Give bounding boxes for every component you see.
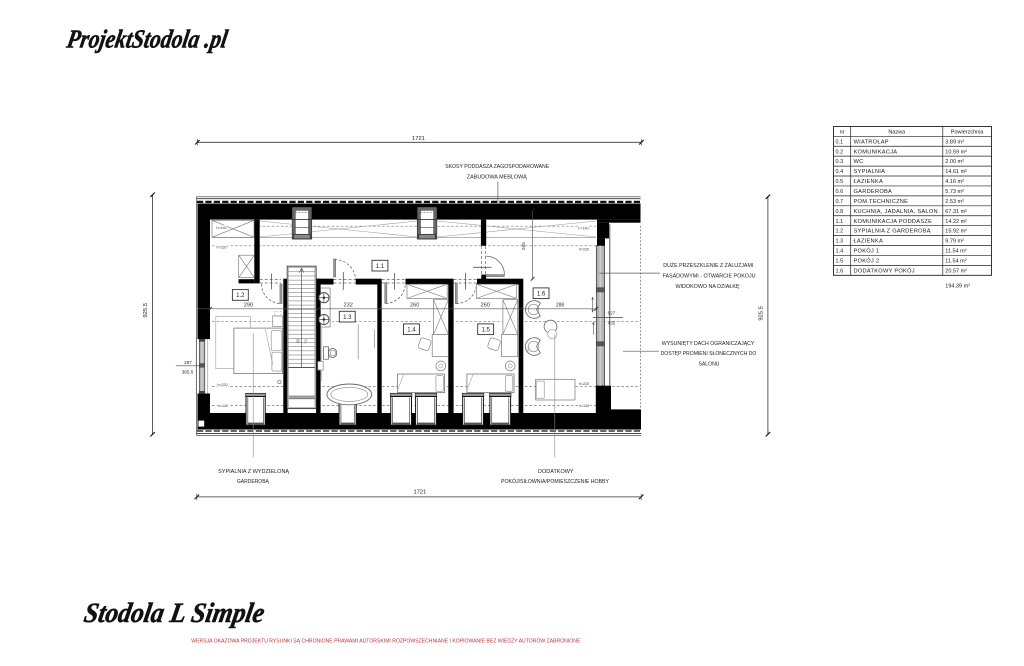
svg-text:90: 90 bbox=[295, 338, 300, 343]
svg-text:1721: 1721 bbox=[412, 136, 425, 142]
svg-text:1.2: 1.2 bbox=[836, 229, 844, 235]
svg-text:0.8: 0.8 bbox=[836, 209, 844, 215]
svg-text:0.7: 0.7 bbox=[836, 199, 844, 205]
svg-text:14.61 m²: 14.61 m² bbox=[945, 169, 967, 175]
svg-text:Stodola L Simple: Stodola L Simple bbox=[82, 598, 267, 629]
svg-text:ProjektStodola .pl: ProjektStodola .pl bbox=[64, 25, 230, 54]
svg-text:1.1: 1.1 bbox=[376, 264, 385, 270]
svg-text:20.57 m²: 20.57 m² bbox=[945, 268, 967, 274]
svg-text:SYPIALNIA: SYPIALNIA bbox=[854, 169, 886, 175]
svg-text:SYPIALNIA Z WYDZIELONĄ: SYPIALNIA Z WYDZIELONĄ bbox=[218, 469, 289, 475]
svg-text:SYPIALNIA Z GARDEROBĄ: SYPIALNIA Z GARDEROBĄ bbox=[854, 229, 931, 235]
svg-text:1.4: 1.4 bbox=[836, 249, 844, 255]
svg-text:SKOSY PODDASZA ZAGOSPODAROWANE: SKOSY PODDASZA ZAGOSPODAROWANE bbox=[445, 164, 549, 170]
svg-text:0.6: 0.6 bbox=[836, 189, 844, 195]
svg-text:265: 265 bbox=[521, 242, 527, 250]
svg-text:2.53 m²: 2.53 m² bbox=[945, 199, 964, 205]
svg-text:SALONU: SALONU bbox=[699, 362, 720, 368]
svg-text:h=220: h=220 bbox=[217, 383, 227, 387]
svg-text:9.79 m²: 9.79 m² bbox=[945, 239, 964, 245]
svg-text:h=220: h=220 bbox=[579, 382, 589, 386]
svg-text:ZABUDOWA MEBLOWĄ: ZABUDOWA MEBLOWĄ bbox=[467, 175, 527, 181]
svg-text:290: 290 bbox=[244, 303, 253, 309]
svg-text:1.3: 1.3 bbox=[836, 239, 844, 245]
svg-text:925.5: 925.5 bbox=[143, 303, 149, 318]
svg-text:Powierzchnia: Powierzchnia bbox=[951, 130, 985, 136]
svg-text:0.1: 0.1 bbox=[836, 139, 844, 145]
svg-text:267: 267 bbox=[184, 360, 192, 365]
svg-text:DOSTĘP PROMIENI SŁONECZNYCH DO: DOSTĘP PROMIENI SŁONECZNYCH DO bbox=[661, 351, 757, 357]
svg-text:260: 260 bbox=[481, 303, 490, 309]
svg-text:925.5: 925.5 bbox=[759, 306, 765, 321]
svg-text:POKÓJ/SIŁOWNIA/POMIESZCZENIE H: POKÓJ/SIŁOWNIA/POMIESZCZENIE HOBBY bbox=[501, 478, 609, 485]
svg-text:14.22 m²: 14.22 m² bbox=[945, 219, 967, 225]
svg-text:11.54 m²: 11.54 m² bbox=[945, 249, 966, 255]
svg-text:1.3: 1.3 bbox=[343, 315, 352, 321]
svg-text:DUŻE PRZESZKLENIE Z ŻALUZJAMI: DUŻE PRZESZKLENIE Z ŻALUZJAMI bbox=[663, 262, 753, 269]
svg-text:5.73 m²: 5.73 m² bbox=[945, 189, 964, 195]
svg-text:h=220: h=220 bbox=[216, 246, 226, 250]
svg-text:POKÓJ 1: POKÓJ 1 bbox=[854, 248, 880, 255]
svg-text:WYSUNIĘTY DACH OGRANICZAJĄCY: WYSUNIĘTY DACH OGRANICZAJĄCY bbox=[662, 341, 755, 347]
svg-text:WC: WC bbox=[854, 159, 864, 165]
svg-text:0.5: 0.5 bbox=[836, 179, 844, 185]
svg-text:232: 232 bbox=[344, 303, 353, 309]
svg-text:KUCHNIA, JADALNIA, SALON: KUCHNIA, JADALNIA, SALON bbox=[854, 209, 938, 215]
svg-text:WIDOKOWO NA DZIAŁKĘ: WIDOKOWO NA DZIAŁKĘ bbox=[676, 284, 740, 290]
svg-text:DODATKOWY: DODATKOWY bbox=[538, 469, 574, 475]
svg-text:260: 260 bbox=[410, 303, 419, 309]
svg-text:1.4: 1.4 bbox=[407, 328, 416, 334]
svg-text:GARDEROBA: GARDEROBA bbox=[854, 189, 893, 195]
svg-text:h=140: h=140 bbox=[216, 226, 226, 230]
svg-text:GARDEROBĄ: GARDEROBĄ bbox=[237, 479, 269, 485]
svg-text:KOMUNIKACJA: KOMUNIKACJA bbox=[854, 149, 898, 155]
svg-text:365.5: 365.5 bbox=[182, 369, 194, 374]
svg-text:3.89 m²: 3.89 m² bbox=[945, 139, 964, 145]
svg-text:1.6: 1.6 bbox=[836, 268, 844, 274]
svg-text:15.92 m²: 15.92 m² bbox=[945, 229, 967, 235]
svg-text:POKÓJ 2: POKÓJ 2 bbox=[854, 257, 880, 264]
svg-text:11.54 m²: 11.54 m² bbox=[945, 258, 966, 264]
svg-text:nr: nr bbox=[840, 130, 845, 136]
svg-text:1.5: 1.5 bbox=[481, 328, 490, 334]
svg-text:67.31 m²: 67.31 m² bbox=[945, 209, 967, 215]
svg-text:288: 288 bbox=[556, 302, 565, 308]
svg-text:1.5: 1.5 bbox=[836, 258, 844, 264]
svg-text:WERSJA OKAZOWA PROJEKTU RYSUNK: WERSJA OKAZOWA PROJEKTU RYSUNKI SĄ CHRON… bbox=[191, 637, 581, 644]
svg-text:2.00 m²: 2.00 m² bbox=[945, 159, 964, 165]
svg-text:1.2: 1.2 bbox=[236, 293, 245, 299]
svg-text:1.1: 1.1 bbox=[836, 219, 844, 225]
svg-text:h=140: h=140 bbox=[218, 404, 228, 408]
svg-text:Nazwa: Nazwa bbox=[888, 130, 906, 136]
svg-text:432: 432 bbox=[608, 321, 616, 326]
svg-text:194.39 m²: 194.39 m² bbox=[945, 284, 970, 290]
svg-text:WIATROŁAP: WIATROŁAP bbox=[854, 139, 889, 145]
svg-text:wys: wys bbox=[304, 338, 308, 344]
svg-text:ŁAZIENKA: ŁAZIENKA bbox=[854, 179, 884, 185]
svg-text:POM.TECHNICZNE: POM.TECHNICZNE bbox=[854, 199, 909, 205]
svg-text:h=140: h=140 bbox=[578, 227, 588, 231]
svg-text:10.59 m²: 10.59 m² bbox=[945, 149, 967, 155]
svg-text:DODATKOWY POKÓJ: DODATKOWY POKÓJ bbox=[854, 267, 915, 274]
svg-text:ŁAZIENKA: ŁAZIENKA bbox=[854, 239, 884, 245]
svg-text:h=220: h=220 bbox=[579, 248, 589, 252]
svg-text:4.16 m²: 4.16 m² bbox=[945, 179, 964, 185]
svg-text:1.6: 1.6 bbox=[537, 292, 546, 298]
svg-text:0.4: 0.4 bbox=[836, 169, 844, 175]
svg-text:0.3: 0.3 bbox=[836, 159, 844, 165]
svg-text:627: 627 bbox=[608, 310, 616, 315]
svg-text:KOMUNIKACJA PODDASZE: KOMUNIKACJA PODDASZE bbox=[854, 219, 933, 225]
svg-text:FASADOWYMI - OTWARCIE POKOJU: FASADOWYMI - OTWARCIE POKOJU bbox=[663, 274, 756, 280]
svg-text:h=140: h=140 bbox=[579, 404, 589, 408]
svg-text:0.2: 0.2 bbox=[836, 149, 844, 155]
svg-text:1721: 1721 bbox=[413, 490, 426, 496]
